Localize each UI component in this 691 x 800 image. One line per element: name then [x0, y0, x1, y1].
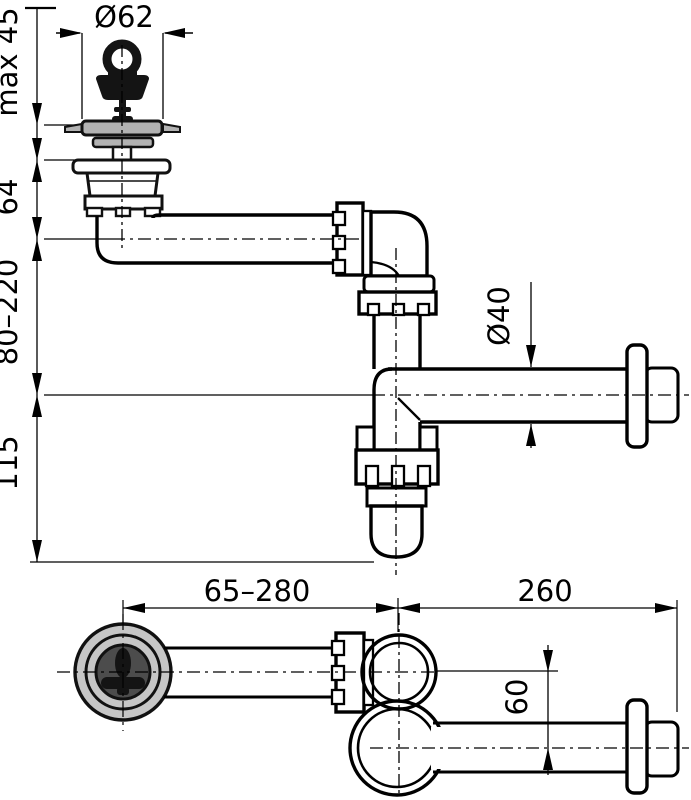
dim-label-inlet-length-range: 65–280 [204, 574, 311, 608]
elbow-seam [398, 398, 420, 420]
upper-elbow-assembly [333, 203, 436, 369]
dim-label-drain-height: 64 [0, 179, 24, 216]
technical-drawing: Ø62 max 45 64 80–220 115 [0, 0, 691, 800]
strainer-disc [93, 138, 153, 147]
strainer-lip-right [163, 124, 180, 132]
dim-label-pipe-diameter: Ø40 [482, 286, 516, 346]
dim-label-trap-depth: 115 [0, 435, 24, 490]
pipe-end-plan [645, 722, 678, 776]
down-elbow [371, 212, 427, 276]
wall-flange [627, 345, 647, 447]
dim-label-inlet-height-range: 80–220 [0, 259, 24, 366]
inlet-pipe [153, 215, 338, 218]
siphon-diagram: Ø62 max 45 64 80–220 115 [0, 0, 691, 800]
dim-label-plug-diameter: Ø62 [94, 0, 154, 34]
dim-label-centerline-offset: 60 [500, 679, 534, 716]
side-elevation-view: Ø62 max 45 64 80–220 115 [0, 0, 689, 575]
bayonet-lug-right [420, 427, 437, 450]
bayonet-lug-left [357, 427, 374, 450]
left-dimension-chain: max 45 64 80–220 115 [0, 7, 374, 562]
plan-view: 65–280 260 [57, 574, 689, 797]
dim-centerline-offset: 60 [436, 645, 558, 775]
dim-label-max-thickness: max 45 [0, 7, 24, 116]
wall-flange-plan [627, 700, 647, 793]
elbow-flare [364, 276, 434, 292]
outlet-pipe-plan [433, 700, 678, 793]
wall-connection-side [627, 345, 678, 447]
dim-label-outlet-length: 260 [517, 574, 572, 608]
